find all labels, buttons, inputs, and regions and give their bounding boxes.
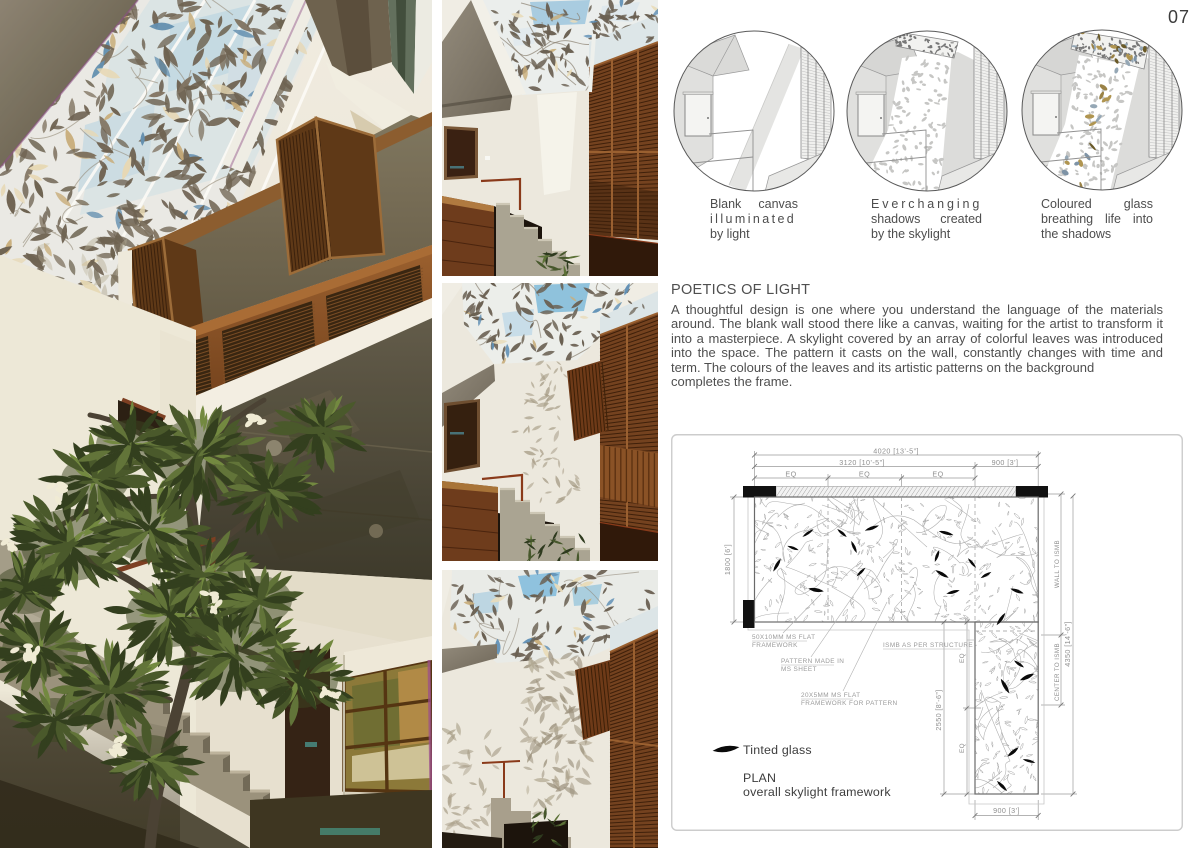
svg-text:overall skylight framework: overall skylight framework [743,785,891,799]
svg-text:EQ: EQ [932,470,943,479]
svg-text:4020 [13’-5”]: 4020 [13’-5”] [873,447,919,456]
svg-text:900 [3’]: 900 [3’] [993,806,1020,815]
svg-text:EQ: EQ [959,653,966,663]
svg-text:EQ: EQ [859,470,870,479]
svg-text:1800 [6’]: 1800 [6’] [723,544,732,575]
svg-text:FRAMEWORK FOR PATTERN: FRAMEWORK FOR PATTERN [801,700,898,707]
svg-text:EQ: EQ [959,743,966,753]
svg-text:PLAN: PLAN [743,771,776,785]
svg-text:PATTERN MADE IN: PATTERN MADE IN [781,658,844,665]
svg-text:MS SHEET: MS SHEET [781,666,817,673]
svg-text:ISMB AS PER STRUCTURE: ISMB AS PER STRUCTURE [883,642,973,649]
svg-text:Tinted glass: Tinted glass [743,743,812,757]
svg-text:2550 [8’-6”]: 2550 [8’-6”] [934,689,943,730]
svg-text:3120 [10’-5”]: 3120 [10’-5”] [839,458,885,467]
svg-text:WALL TO ISMB: WALL TO ISMB [1054,540,1061,588]
svg-text:FRAMEWORK: FRAMEWORK [752,642,798,649]
svg-text:EQ: EQ [785,470,796,479]
svg-text:CENTER TO ISMB: CENTER TO ISMB [1054,643,1061,701]
svg-text:4350 [14’-6”]: 4350 [14’-6”] [1063,621,1072,667]
svg-text:20X5MM MS FLAT: 20X5MM MS FLAT [801,692,860,699]
svg-text:900 [3’]: 900 [3’] [992,458,1019,467]
svg-text:50X10MM MS FLAT: 50X10MM MS FLAT [752,634,815,641]
